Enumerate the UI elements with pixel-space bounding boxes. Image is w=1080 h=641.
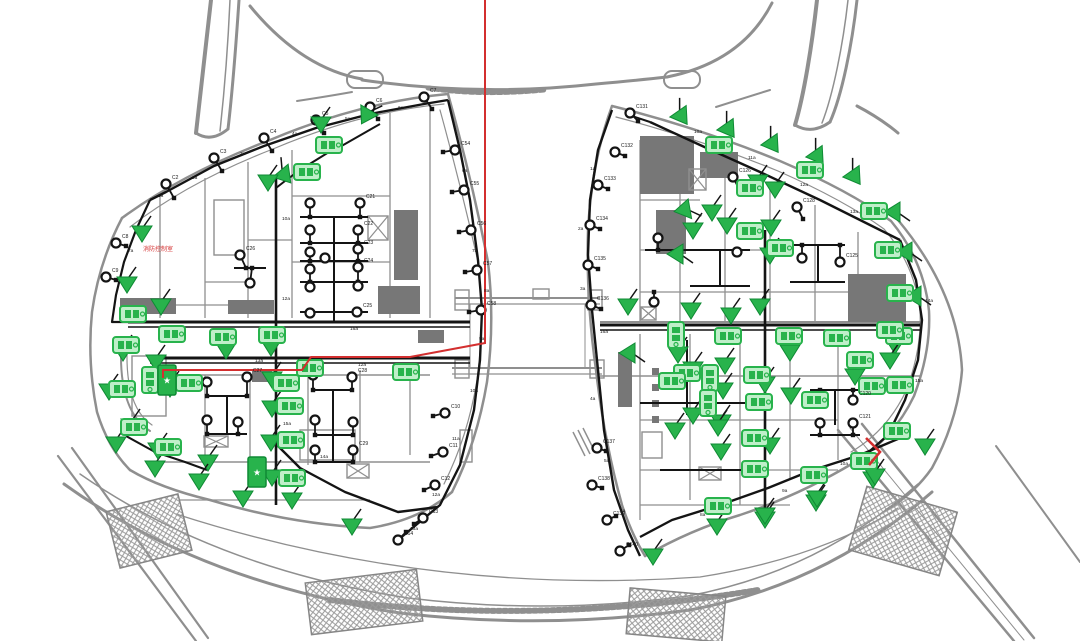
module-icon (668, 322, 684, 348)
junction-dot (851, 388, 855, 392)
device-label: C23 (364, 240, 373, 246)
module-icon (737, 180, 763, 196)
wall-path (857, 106, 898, 133)
detector-icon (650, 298, 659, 307)
module-icon (744, 367, 770, 383)
core-block (652, 416, 659, 423)
core-block (228, 300, 274, 314)
device-label: C140 (626, 542, 638, 548)
detector-icon (584, 261, 593, 270)
core-block (640, 136, 694, 194)
device-label: C10 (451, 404, 460, 410)
detector-icon (593, 444, 602, 453)
junction-dot (245, 394, 249, 398)
speaker-icon (618, 289, 638, 315)
junction-dot (308, 241, 312, 245)
wall-path (297, 92, 352, 101)
detector-icon (836, 258, 845, 267)
module-icon (659, 373, 685, 389)
device-label: C121 (859, 414, 871, 420)
module-icon (742, 461, 768, 477)
module-icon (294, 164, 320, 180)
module-icon (797, 162, 823, 178)
wire-label: 3a (580, 286, 586, 292)
detector-icon (203, 378, 212, 387)
wall-path (196, 129, 228, 137)
wire-label: 10a (282, 216, 290, 222)
detector-icon (611, 148, 620, 157)
junction-dot (463, 270, 467, 274)
detector-icon (306, 199, 315, 208)
module-icon (847, 352, 873, 368)
junction-dot (599, 307, 603, 311)
wall-path (667, 3, 772, 77)
fire-panel-icon: ★ (248, 457, 266, 487)
detector-icon (354, 226, 363, 235)
junction-dot (205, 432, 209, 436)
detector-icon (243, 373, 252, 382)
wall-path (795, 0, 817, 125)
device-label: C135 (594, 256, 606, 262)
device-label: C25 (363, 303, 372, 309)
wall-path (250, 6, 362, 79)
device-label: C11 (449, 443, 458, 449)
device-label: C7 (430, 88, 437, 94)
wire-label: 1a (590, 166, 596, 172)
wire-label: 12a (358, 362, 366, 368)
module-icon (802, 392, 828, 408)
module-icon (273, 375, 299, 391)
wire-label: 8a (700, 512, 706, 518)
speaker-icon (717, 208, 737, 234)
device-label: C2 (172, 175, 179, 181)
detector-icon (733, 248, 742, 257)
device-label: C58 (487, 301, 496, 307)
wire-label: 2a (578, 226, 584, 232)
wire-label: 11a (748, 155, 756, 161)
junction-dot (376, 117, 380, 121)
detector-icon (162, 180, 171, 189)
wire-label: 3a (240, 151, 246, 157)
speaker-icon (721, 298, 741, 324)
detector-icon (349, 446, 358, 455)
detector-icon (616, 547, 625, 556)
device-label: C128 (803, 198, 815, 204)
wire-label: 13a (255, 358, 263, 364)
device-label: C27 (253, 368, 262, 374)
floor-plan-canvas: ★★ 消防控制室 C2C3C4C5C6C7C8C9C54C55C56C57C58… (0, 0, 1080, 641)
module-icon (877, 322, 903, 338)
wire-label: 10a (840, 461, 848, 467)
module-icon (705, 498, 731, 514)
wire-label: 4a (292, 131, 298, 137)
wire-label: 9a (782, 488, 788, 494)
device-label: C3 (220, 149, 227, 155)
detector-icon (729, 173, 738, 182)
junction-dot (600, 486, 604, 490)
wire-label: 12a (432, 492, 440, 498)
junction-dot (351, 460, 355, 464)
detector-icon (849, 396, 858, 405)
junction-dot (800, 243, 804, 247)
wall-path (830, 0, 857, 122)
junction-dot (467, 310, 471, 314)
junction-dot (818, 433, 822, 437)
detector-icon (431, 481, 440, 490)
junction-dot (358, 215, 362, 219)
module-icon (706, 137, 732, 153)
wire-label: 15a (283, 421, 291, 427)
device-label: C9 (112, 268, 119, 274)
wire-label: 5a (604, 458, 610, 464)
junction-dot (429, 454, 433, 458)
detector-icon (654, 234, 663, 243)
device-label: C29 (359, 441, 368, 447)
wire-label: 13a (850, 209, 858, 215)
detector-icon (420, 93, 429, 102)
detector-icon (354, 263, 363, 272)
wire-run (338, 124, 380, 148)
module-icon (155, 439, 181, 455)
wire-label: 5a (345, 116, 351, 122)
module-icon (776, 328, 802, 344)
device-label: C5 (322, 111, 329, 117)
detector-icon (306, 248, 315, 257)
room-rect (455, 290, 469, 310)
device-label: C54 (461, 141, 470, 147)
detector-icon (311, 416, 320, 425)
wall-path (795, 122, 830, 129)
hatched-apron (626, 588, 726, 641)
wire-label: 6a (620, 508, 626, 514)
junction-dot (598, 227, 602, 231)
device-label: C137 (603, 439, 615, 445)
device-label: C26 (246, 246, 255, 252)
speaker-icon (117, 267, 137, 293)
detector-icon (348, 373, 357, 382)
detector-icon (441, 409, 450, 418)
core-block (394, 210, 418, 280)
wire-label: 10a (694, 129, 702, 135)
wire-label: 8a (484, 288, 490, 294)
wire-label: 16a (600, 329, 608, 335)
wire-label: 12a (800, 182, 808, 188)
wire-label: 13a (410, 526, 418, 532)
wire-label: 11a (452, 436, 460, 442)
speaker-icon (665, 413, 685, 439)
speaker-icon (807, 481, 827, 507)
detector-icon (460, 186, 469, 195)
detector-icon (588, 481, 597, 490)
junction-dot (851, 433, 855, 437)
device-label: C22 (364, 221, 373, 227)
detector-icon (311, 446, 320, 455)
module-icon (279, 470, 305, 486)
wire-label: 16a (350, 326, 358, 332)
device-label: C136 (597, 296, 609, 302)
wire-run (398, 100, 482, 540)
wire-label: 1a (158, 193, 164, 199)
module-icon (210, 329, 236, 345)
detector-icon (439, 448, 448, 457)
module-icon (297, 360, 323, 376)
module-icon (113, 337, 139, 353)
speaker-icon (132, 216, 152, 242)
module-icon (737, 223, 763, 239)
junction-dot (244, 266, 248, 270)
module-icon (702, 365, 718, 391)
detector-icon (798, 254, 807, 263)
wall-path (362, 77, 667, 90)
junction-dot (313, 433, 317, 437)
speaker-icon (781, 378, 801, 404)
wall-path (196, 0, 211, 133)
junction-dot (450, 190, 454, 194)
wall-line (573, 432, 585, 456)
device-label: C4 (270, 129, 277, 135)
wall-path (716, 90, 770, 107)
module-icon (120, 306, 146, 322)
detector-icon (260, 134, 269, 143)
device-label: C21 (366, 194, 375, 200)
wire-label: 12a (282, 296, 290, 302)
speaker-icon (711, 434, 731, 460)
module-icon (316, 137, 342, 153)
core-block (652, 384, 659, 391)
detector-icon (246, 279, 255, 288)
module-icon (715, 328, 741, 344)
module-icon (875, 242, 901, 258)
junction-dot (313, 460, 317, 464)
detector-icon (626, 109, 635, 118)
junction-dot (422, 488, 426, 492)
detector-icon (236, 251, 245, 260)
junction-dot (124, 244, 128, 248)
wire-label: 6a (462, 168, 468, 174)
junction-dot (430, 107, 434, 111)
detector-icon (467, 226, 476, 235)
module-icon (159, 326, 185, 342)
wire-label: 14a (320, 454, 328, 460)
hatched-apron (106, 494, 192, 568)
device-label: C120 (859, 391, 871, 397)
module-icon (767, 240, 793, 256)
detector-icon (306, 265, 315, 274)
detector-icon (210, 154, 219, 163)
svg-text:★: ★ (253, 468, 261, 478)
wire-label: 4a (590, 396, 596, 402)
device-label: C28 (358, 368, 367, 374)
wire-label: 7a (128, 248, 134, 254)
device-label: C56 (477, 221, 486, 227)
wire-label: 6a (398, 105, 404, 111)
hatched-apron (849, 486, 958, 575)
module-icon (393, 364, 419, 380)
module-icon (824, 330, 850, 346)
detector-icon (102, 273, 111, 282)
device-label: C138 (598, 476, 610, 482)
core-block (412, 288, 418, 294)
module-icon (278, 432, 304, 448)
junction-dot (801, 217, 805, 221)
device-label: C134 (596, 216, 608, 222)
detector-icon (587, 301, 596, 310)
speaker-icon (837, 157, 868, 190)
detector-icon (603, 516, 612, 525)
wire-label: 14a (925, 298, 933, 304)
fire-control-room-label: 消防控制室 (143, 245, 173, 253)
device-label: C8 (122, 234, 129, 240)
detector-icon (793, 203, 802, 212)
junction-dot (308, 215, 312, 219)
module-icon (887, 285, 913, 301)
junction-dot (838, 243, 842, 247)
device-label: C133 (604, 176, 616, 182)
detector-icon (234, 418, 243, 427)
module-icon (861, 203, 887, 219)
device-label: C24 (364, 258, 373, 264)
detector-icon (306, 309, 315, 318)
module-icon (176, 375, 202, 391)
detector-icon (203, 416, 212, 425)
speaker-icon (342, 509, 362, 535)
detector-icon (419, 514, 428, 523)
device-label: C12 (441, 476, 450, 482)
detector-icon (586, 221, 595, 230)
detector-icon (816, 419, 825, 428)
wire-label: 7a (472, 248, 478, 254)
speaker-icon (915, 429, 935, 455)
detector-icon (112, 239, 121, 248)
site-plan: ★★ 消防控制室 C2C3C4C5C6C7C8C9C54C55C56C57C58… (0, 0, 1080, 641)
device-label: C55 (470, 181, 479, 187)
junction-dot (412, 522, 416, 526)
module-icon (259, 327, 285, 343)
detector-icon (594, 181, 603, 190)
junction-dot (652, 290, 656, 294)
detector-icon (354, 245, 363, 254)
device-label: C6 (376, 98, 383, 104)
core-block (412, 246, 418, 252)
junction-dot (270, 149, 274, 153)
speaker-icon (643, 539, 663, 565)
junction-dot (604, 449, 608, 453)
detector-icon (394, 536, 403, 545)
device-label: C132 (621, 143, 633, 149)
wire-label: 9a (479, 336, 485, 342)
junction-dot (431, 414, 435, 418)
junction-dot (205, 394, 209, 398)
junction-dot (172, 196, 176, 200)
detector-icon (356, 199, 365, 208)
core-block (412, 232, 418, 238)
junction-dot (350, 388, 354, 392)
detector-icon (353, 308, 362, 317)
junction-dot (308, 259, 312, 263)
junction-dot (606, 187, 610, 191)
junction-dot (311, 388, 315, 392)
junction-dot (441, 150, 445, 154)
core-block (412, 274, 418, 280)
device-label: C57 (483, 261, 492, 267)
junction-dot (636, 119, 640, 123)
device-label: C126 (739, 168, 751, 174)
core-block (652, 368, 659, 375)
detector-icon (306, 283, 315, 292)
module-icon (887, 377, 913, 393)
junction-dot (457, 230, 461, 234)
detector-icon (321, 254, 330, 263)
module-icon (742, 430, 768, 446)
module-icon (700, 390, 716, 416)
detector-icon (349, 418, 358, 427)
room-rect (214, 200, 244, 255)
detector-icon (849, 419, 858, 428)
detector-icon (451, 146, 460, 155)
core-block (412, 260, 418, 266)
module-icon (801, 467, 827, 483)
device-label: C131 (636, 104, 648, 110)
module-icon (746, 394, 772, 410)
junction-dot (656, 248, 660, 252)
detector-icon (306, 226, 315, 235)
detector-icon (354, 282, 363, 291)
wall-line (578, 430, 590, 454)
module-icon (277, 398, 303, 414)
wall-path (996, 446, 1080, 562)
core-block (418, 330, 444, 343)
svg-text:★: ★ (163, 376, 171, 386)
speaker-icon (681, 293, 701, 319)
junction-dot (623, 154, 627, 158)
speaker-icon (702, 195, 722, 221)
wire-label: 2a (192, 175, 198, 181)
wire-label: 10a (470, 388, 478, 394)
device-label: C125 (846, 253, 858, 259)
junction-dot (596, 267, 600, 271)
speaker-icon (750, 289, 770, 315)
module-icon (121, 419, 147, 435)
detector-icon (473, 266, 482, 275)
device-label: C13 (429, 509, 438, 515)
junction-dot (236, 432, 240, 436)
hatched-apron (305, 569, 423, 634)
module-icon (884, 423, 910, 439)
module-icon (142, 367, 158, 393)
junction-dot (250, 266, 254, 270)
junction-dot (220, 169, 224, 173)
module-icon (109, 381, 135, 397)
junction-dot (351, 433, 355, 437)
wire-label: 15a (915, 378, 923, 384)
room-rect (642, 432, 662, 458)
